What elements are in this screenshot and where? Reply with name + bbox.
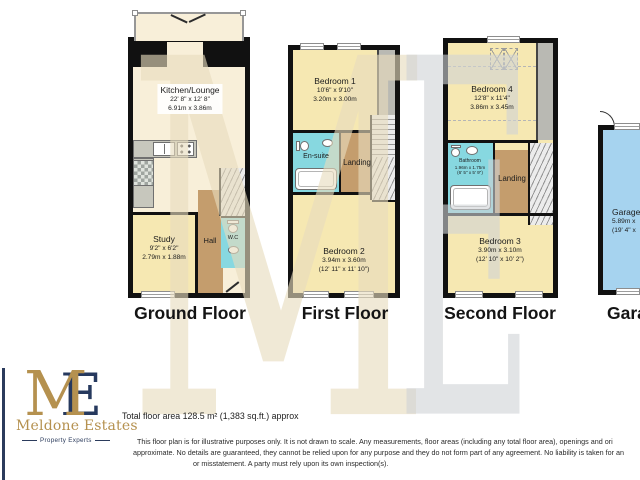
- wall-pier: [203, 42, 245, 67]
- disclaimer-line-3: or misstatement. A party must rely upon …: [193, 459, 388, 468]
- bathtub-icon: [295, 168, 337, 190]
- room-dims-imperial: 22' 8" x 12' 8": [160, 96, 219, 105]
- room-dims-imperial: (19' 4" x: [612, 227, 640, 236]
- window: [344, 291, 374, 298]
- stairs: [372, 115, 395, 157]
- stairs: [221, 168, 245, 216]
- wall-pier: [133, 42, 167, 67]
- window: [141, 291, 175, 298]
- window-post-icon: [240, 10, 246, 16]
- window: [455, 291, 483, 298]
- partition-wall: [493, 143, 495, 213]
- window: [303, 291, 329, 298]
- bathroom-label: Bathroom 1.96m x 1.75m (6' 5" x 5' 9"): [455, 158, 485, 176]
- ensuite-label: En-suite: [303, 153, 329, 160]
- door-arc-icon: [600, 111, 615, 127]
- bathtub-icon: [450, 185, 491, 210]
- worktop-icon: [133, 160, 154, 186]
- room-dims-metric: 3.86m x 3.45m: [470, 104, 514, 113]
- landing-second-label: Landing: [498, 174, 526, 183]
- window: [300, 43, 324, 50]
- room-name: Bedroom 2: [319, 246, 370, 257]
- skylight-icon: [504, 48, 518, 70]
- bedroom4-label: Bedroom 4 12'8" x 11'4" 3.86m x 3.45m: [470, 84, 514, 112]
- room-dims-metric: 5.89m x: [612, 218, 640, 227]
- room-bedroom2: [293, 192, 395, 293]
- partition-wall: [293, 192, 372, 195]
- partition-wall: [133, 212, 197, 215]
- partition-wall: [372, 200, 395, 202]
- room-dims-imperial: 9'2" x 6'2": [142, 245, 186, 254]
- window: [487, 36, 520, 43]
- partition-wall: [448, 213, 553, 216]
- study-label: Study 9'2" x 6'2" 2.79m x 1.88m: [142, 234, 186, 262]
- room-name: Kitchen/Lounge: [160, 85, 219, 96]
- toilet-icon: [300, 141, 309, 151]
- room-name: Bedroom 3: [476, 236, 524, 247]
- partition-wall: [221, 216, 245, 218]
- basin-icon: [228, 246, 239, 254]
- garage-title: Garage: [607, 303, 640, 324]
- tagline-text: Property Experts: [40, 437, 92, 444]
- window: [614, 123, 640, 130]
- window: [616, 288, 640, 295]
- partition-wall: [293, 130, 382, 133]
- eaves-storage: [377, 50, 395, 115]
- window: [337, 43, 361, 50]
- second-floor-title: Second Floor: [444, 303, 556, 324]
- room-dims-imperial: (6' 5" x 5' 9"): [455, 170, 485, 176]
- room-name: Bedroom 4: [470, 84, 514, 95]
- room-dims-imperial: 10'6" x 9'10": [313, 87, 357, 96]
- room-dims-metric: 3.20m x 3.00m: [313, 96, 357, 105]
- room-dims-metric: 2.79m x 1.88m: [142, 254, 186, 263]
- first-floor-title: First Floor: [302, 303, 389, 324]
- bedroom1-label: Bedroom 1 10'6" x 9'10" 3.20m x 3.00m: [313, 76, 357, 104]
- kitchen-lounge-label: Kitchen/Lounge 22' 8" x 12' 8" 6.91m x 3…: [157, 84, 222, 114]
- logo-edge-bar: [2, 368, 5, 480]
- bay-window: [134, 12, 244, 41]
- skylight-icon: [490, 48, 504, 70]
- tagline-rule: [22, 440, 37, 441]
- toilet-icon: [228, 224, 238, 233]
- eaves-storage: [536, 43, 553, 140]
- sink-icon: [153, 142, 175, 156]
- logo-tagline: Property Experts: [22, 437, 110, 444]
- toilet-icon: [451, 148, 460, 157]
- room-dims-imperial: (12' 10" x 10' 2"): [476, 256, 524, 265]
- basin-icon: [322, 139, 333, 147]
- total-floor-area: Total floor area 128.5 m² (1,383 sq.ft.)…: [122, 411, 299, 421]
- window-post-icon: [132, 10, 138, 16]
- stairs: [372, 157, 395, 200]
- garage-label: Garage 5.89m x (19' 4" x: [612, 207, 640, 235]
- floor-plan-image: Kitchen/Lounge 22' 8" x 12' 8" 6.91m x 3…: [0, 0, 640, 480]
- partition-wall: [195, 212, 198, 293]
- room-dims-imperial: (12' 11" x 11' 10"): [319, 266, 370, 275]
- tagline-rule: [95, 440, 110, 441]
- bedroom2-label: Bedroom 2 3.94m x 3.60m (12' 11" x 11' 1…: [319, 246, 370, 274]
- room-dims-metric: 3.94m x 3.60m: [319, 257, 370, 266]
- bedroom3-label: Bedroom 3 3.90m x 3.10m (12' 10" x 10' 2…: [476, 236, 524, 264]
- wc-label: W.C: [228, 235, 238, 241]
- window: [515, 291, 543, 298]
- room-name: Study: [142, 234, 186, 245]
- logo-name: Meldone Estates: [16, 419, 138, 433]
- hall-label: Hall: [204, 236, 217, 245]
- room-name: Garage: [612, 207, 640, 218]
- room-name: Bathroom: [455, 158, 485, 165]
- landing-first-label: Landing: [343, 158, 371, 167]
- disclaimer-line-1: This floor plan is for illustrative purp…: [137, 437, 613, 446]
- room-dims-metric: 3.90m x 3.10m: [476, 247, 524, 256]
- basin-icon: [466, 146, 478, 155]
- room-dims-imperial: 12'8" x 11'4": [470, 95, 514, 104]
- room-dims-metric: 6.91m x 3.86m: [160, 105, 219, 114]
- logo-monogram-m: M: [24, 363, 87, 425]
- hob-icon: [177, 142, 194, 156]
- ground-floor-title: Ground Floor: [134, 303, 246, 324]
- disclaimer-line-2: approximate. No details are guaranteed, …: [133, 448, 624, 457]
- room-name: Bedroom 1: [313, 76, 357, 87]
- partition-wall: [339, 133, 341, 192]
- ceiling-line: [448, 120, 536, 121]
